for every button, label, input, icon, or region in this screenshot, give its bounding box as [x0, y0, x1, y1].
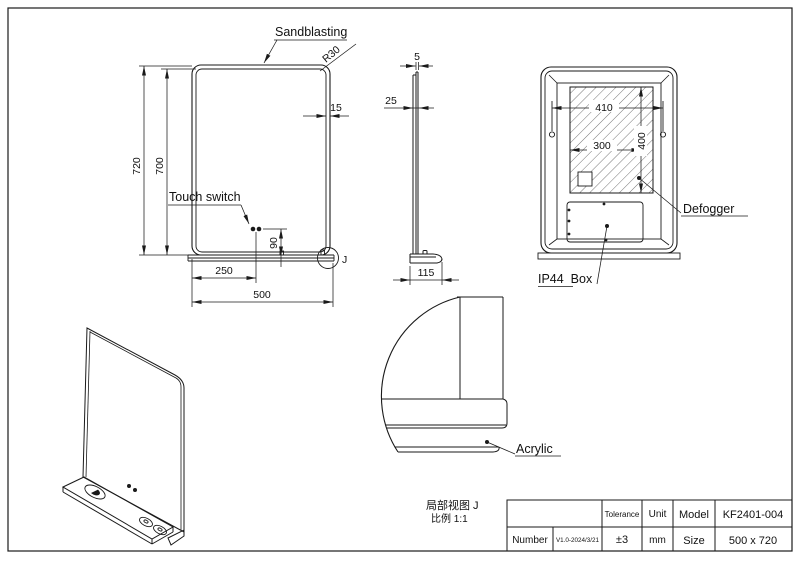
isometric-view	[63, 328, 184, 545]
defogger-label: Defogger	[683, 202, 734, 216]
ip44-label: IP44 Box	[538, 272, 593, 286]
dim-5: 5	[414, 51, 420, 63]
back-view	[538, 67, 748, 287]
drawing-page: Sandblasting R30 15 720 700 Touch switch…	[0, 0, 800, 561]
dim-410: 410	[595, 102, 613, 114]
dim-25: 25	[385, 95, 397, 107]
tolerance-label: Tolerance	[605, 510, 640, 519]
number-label: Number	[512, 535, 548, 546]
iso-shelf	[63, 477, 184, 545]
detail-view-j	[381, 297, 561, 456]
dim-90: 90	[268, 237, 280, 249]
detail-scale: 比例 1:1	[431, 512, 468, 525]
shelf-clip-side	[423, 251, 427, 255]
hanger-hook-left	[549, 101, 554, 137]
touch-switch-dot	[251, 227, 256, 232]
dim-115: 115	[418, 267, 435, 279]
detail-mark-j: J	[342, 254, 347, 266]
mirror-outline	[192, 65, 330, 255]
dim-720: 720	[131, 157, 143, 175]
iso-touch-dot	[133, 488, 137, 492]
corner-radius-label: R30	[320, 44, 343, 66]
size-value: 500 x 720	[729, 535, 777, 547]
size-label: Size	[683, 535, 704, 547]
model-label: Model	[679, 509, 709, 521]
cad-drawing: Sandblasting R30 15 720 700 Touch switch…	[0, 0, 800, 561]
touch-switch-dot	[257, 227, 262, 232]
detail-boundary-arc	[381, 297, 460, 452]
dim-400: 400	[636, 132, 648, 150]
back-base-strip	[538, 253, 680, 259]
dim-500: 500	[253, 289, 271, 301]
dim-15: 15	[330, 102, 342, 114]
touch-switch-label: Touch switch	[169, 190, 241, 204]
sandblast-border	[196, 69, 326, 252]
model-value: KF2401-004	[723, 509, 784, 521]
iso-foot	[168, 530, 184, 545]
detail-caption: 局部视图 J	[426, 498, 479, 512]
number-value: V1.0-2024/3/21	[556, 537, 600, 544]
acrylic-label: Acrylic	[516, 442, 553, 456]
dim-250: 250	[215, 265, 233, 277]
tolerance-value: ±3	[616, 534, 628, 546]
front-view	[188, 65, 339, 269]
front-view-dimensions	[139, 40, 356, 307]
dim-700: 700	[154, 157, 166, 175]
unit-label: Unit	[649, 509, 667, 520]
side-shelf-bottom	[410, 259, 442, 263]
dim-300: 300	[593, 140, 611, 152]
sandblasting-label: Sandblasting	[275, 25, 347, 39]
sensor-cutout	[578, 172, 592, 186]
page-border	[8, 8, 792, 551]
iso-touch-dot	[127, 484, 131, 488]
unit-value: mm	[649, 535, 666, 546]
iso-mirror-panel	[83, 328, 184, 532]
